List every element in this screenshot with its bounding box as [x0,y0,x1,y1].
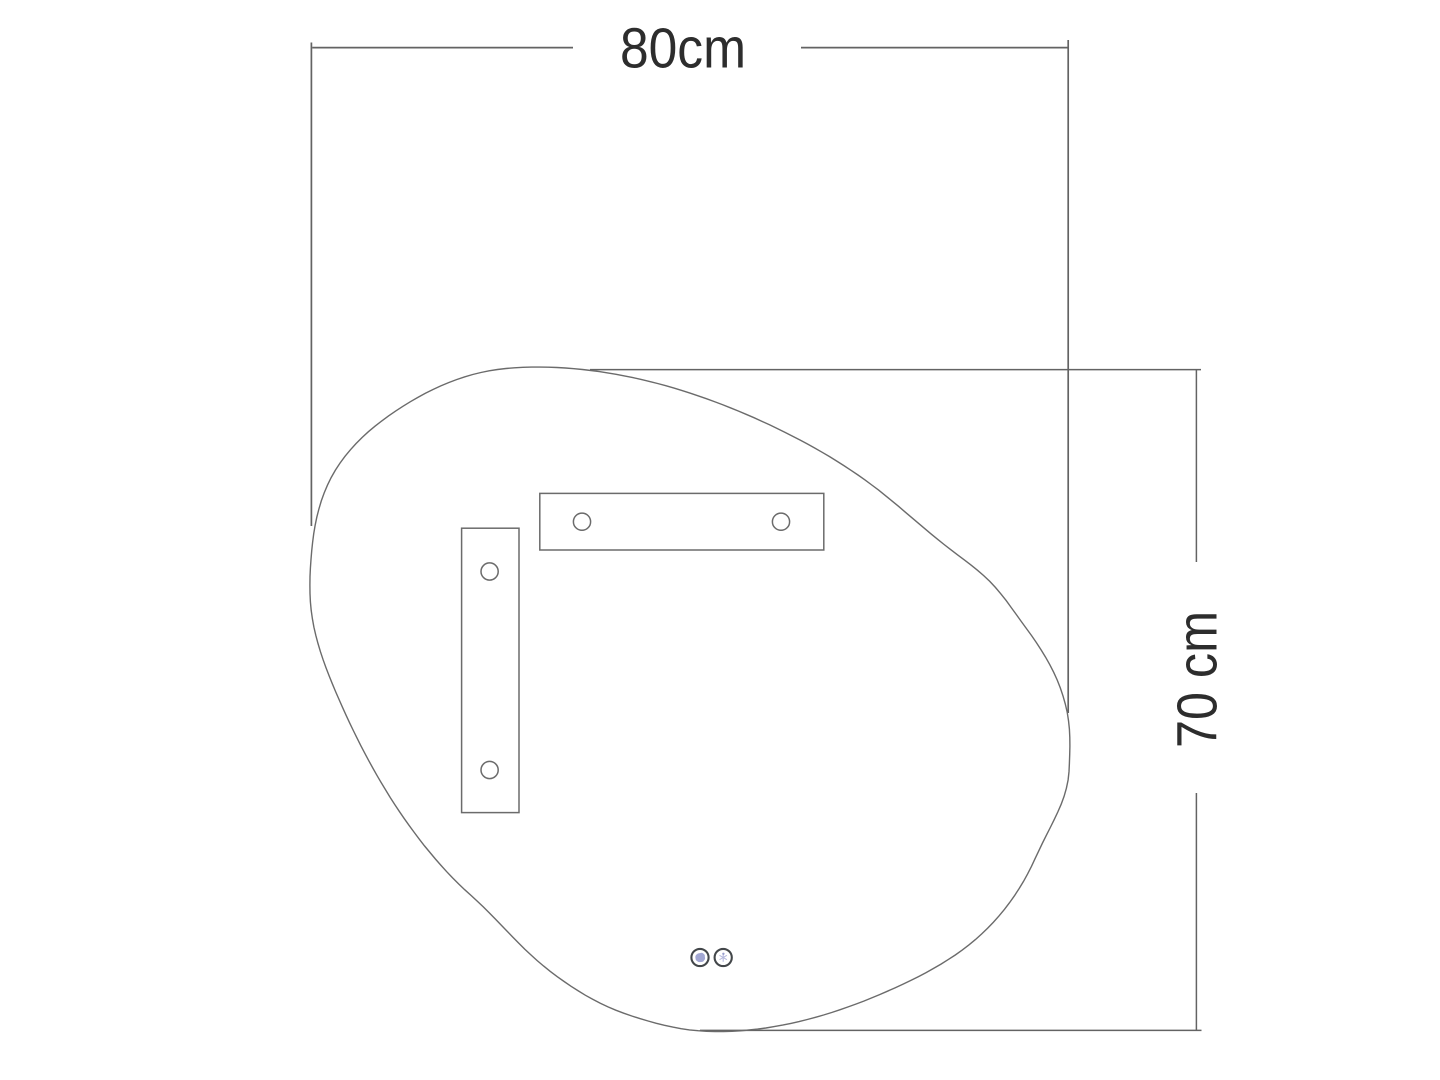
svg-text:70 cm: 70 cm [1166,611,1230,748]
svg-text:80cm: 80cm [620,17,746,81]
